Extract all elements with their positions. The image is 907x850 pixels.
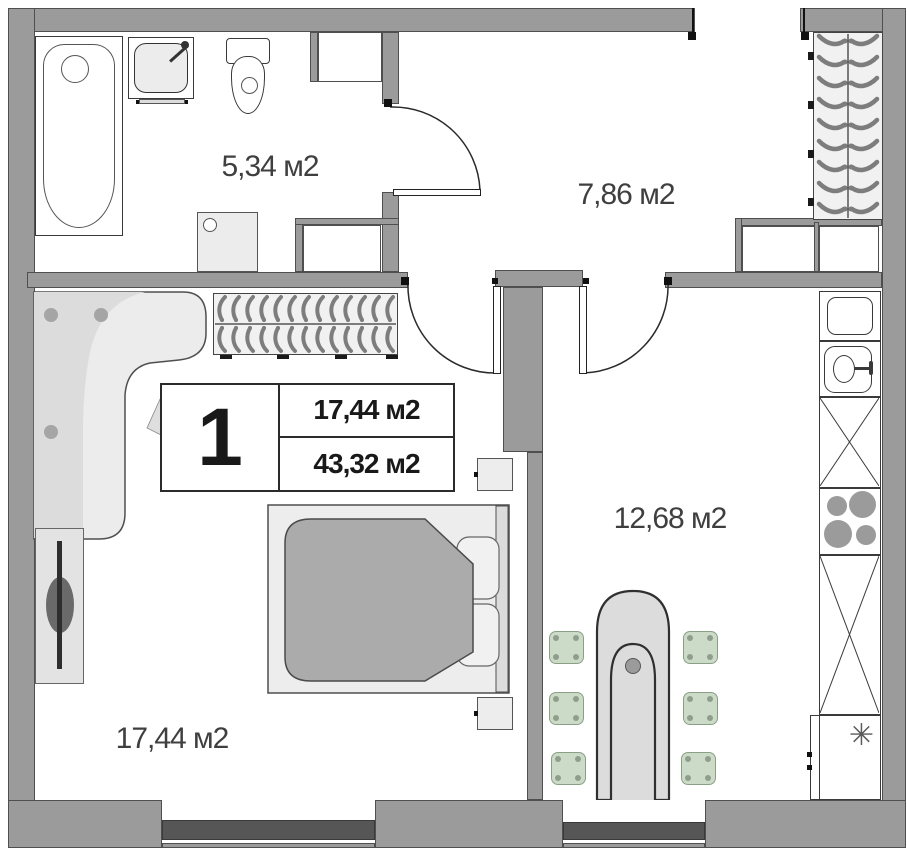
window-sill [162, 843, 375, 848]
blanket [285, 519, 473, 681]
floor-plan: ✳ 5,34 м2 7,86 м2 17,44 м2 12,68 м2 1 17… [0, 0, 907, 850]
wardrobe-hinge-tick [808, 150, 814, 158]
door-hinge-mark [664, 277, 672, 285]
window-sill [563, 843, 705, 848]
washbasin-base [139, 99, 185, 104]
door-leaf-bathroom [393, 189, 481, 196]
ventilation-shaft [303, 225, 381, 272]
chair [683, 692, 718, 725]
nightstand-knob [474, 711, 478, 716]
ventilation-shaft [819, 226, 879, 272]
faucet-icon [854, 367, 870, 370]
bathroom-area-label: 5,34 м2 [195, 150, 345, 184]
unit-info-block: 1 17,44 м2 43,32 м2 [160, 383, 455, 492]
bathtub [35, 36, 123, 236]
unit-number: 1 [162, 385, 280, 490]
burner [824, 520, 852, 548]
wall-top [8, 8, 695, 32]
door-leaf-living [493, 286, 501, 374]
unit-total-area: 43,32 м2 [280, 438, 453, 491]
window-kitchen [563, 800, 705, 848]
stove [819, 488, 881, 555]
ventilation-shaft [318, 32, 382, 82]
door-hinge-mark [401, 277, 409, 285]
wall-bottom-middle [375, 800, 563, 848]
wardrobe-hinge-tick [808, 198, 814, 206]
tv-screen [57, 541, 62, 669]
wardrobe-foot [335, 355, 347, 359]
wardrobe-foot [277, 355, 289, 359]
wall-top-shaft-frame [310, 32, 318, 82]
wall-right [882, 8, 906, 848]
double-bed [267, 504, 510, 694]
fridge-hinge [807, 752, 812, 757]
faucet-icon [181, 41, 189, 49]
door-hinge-mark [384, 99, 392, 107]
washbasin [128, 37, 194, 99]
chair [549, 692, 584, 725]
fridge-hinge [807, 765, 812, 770]
wardrobe-foot [220, 355, 232, 359]
kitchen-area-label: 12,68 м2 [600, 502, 740, 536]
fridge-snowflake-icon: ✳ [849, 718, 874, 753]
chair [683, 631, 718, 664]
nightstand [477, 458, 513, 491]
nightstand-knob [474, 472, 478, 477]
nightstand [477, 697, 513, 730]
kitchen-sink [819, 341, 881, 397]
living-wardrobe [213, 293, 398, 355]
wall-shaft-frame-top [295, 218, 399, 225]
fridge-door [810, 715, 820, 800]
kitchen-cabinet [819, 397, 881, 488]
wall-bottom-left [8, 800, 162, 848]
fridge: ✳ [819, 715, 881, 800]
dining-table [595, 588, 671, 800]
door-hinge-mark [492, 278, 498, 284]
wall-center-lower [527, 452, 543, 800]
door-swing-bathroom [383, 100, 483, 195]
faucet-icon [869, 361, 873, 375]
wardrobe-foot [386, 355, 398, 359]
door-leaf-kitchen [579, 286, 587, 374]
hallway-area-label: 7,86 м2 [556, 178, 696, 212]
door-hinge-mark [583, 278, 589, 284]
chair [551, 752, 586, 785]
hallway-wardrobe [813, 32, 883, 220]
kitchen-counter [819, 291, 881, 341]
chair [681, 752, 716, 785]
kitchen-cabinet [819, 555, 881, 715]
wall-shaft-frame-left [295, 218, 303, 272]
wardrobe-hinge-tick [808, 52, 814, 60]
wall-vent-frame-left [735, 218, 742, 272]
ventilation-shaft [742, 226, 815, 272]
wall-shaft-column [382, 192, 399, 272]
toilet-bowl [231, 56, 265, 114]
wall-bathroom-door-stub [382, 32, 399, 104]
unit-room-area: 17,44 м2 [280, 385, 453, 438]
wall-bottom-right [705, 800, 906, 848]
chair [549, 631, 584, 664]
wall-left [8, 8, 35, 848]
window-living-room [162, 800, 375, 848]
living-room-area-label: 17,44 м2 [97, 722, 247, 756]
burner [856, 525, 876, 545]
wall-hall-kitchen [665, 272, 882, 288]
entrance-door-jamb [801, 32, 809, 40]
tv-stand [35, 528, 84, 684]
burner [827, 496, 847, 516]
wardrobe-hinge-tick [808, 101, 814, 109]
entrance-door-jamb [688, 32, 696, 40]
wall-bathroom-bottom [27, 272, 408, 288]
door-swing-kitchen [575, 275, 685, 385]
water-heater [197, 212, 258, 272]
window-glass [162, 820, 375, 840]
burner [849, 491, 876, 518]
window-glass [563, 822, 705, 840]
